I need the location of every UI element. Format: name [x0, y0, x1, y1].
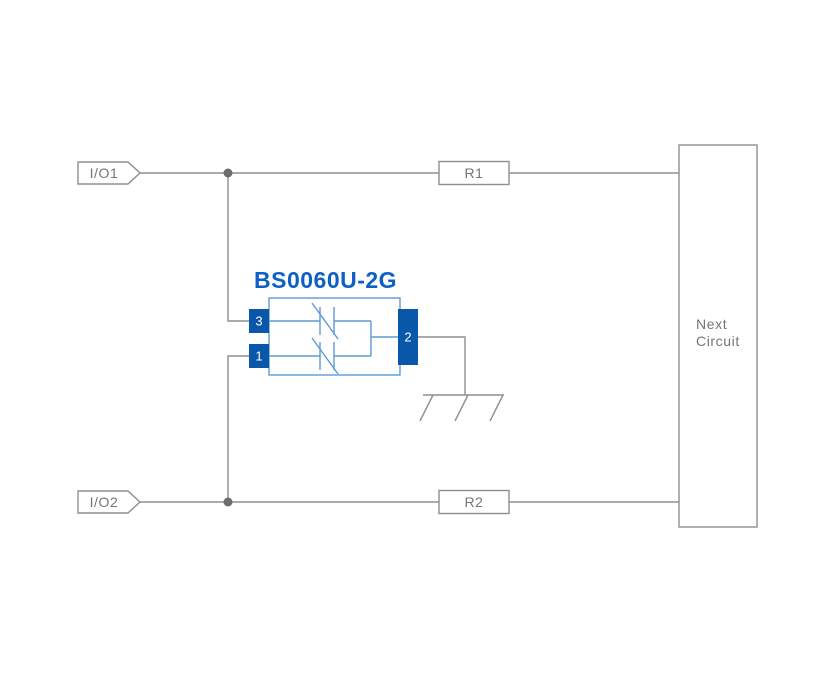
io1-tag: I/O1	[78, 162, 140, 184]
next-circuit-block: Next Circuit	[679, 145, 757, 527]
ground-hatch	[455, 395, 468, 421]
resistor-r1: R1	[439, 162, 509, 185]
io1-label: I/O1	[90, 165, 119, 181]
next-circuit-label-line1: Next	[696, 316, 727, 332]
chassis-ground-icon	[420, 395, 504, 421]
wire-segment	[418, 337, 465, 395]
junction-dot	[224, 498, 233, 507]
wire-segment	[228, 356, 249, 502]
wire-segment	[228, 173, 249, 321]
schematic-page: I/O1 I/O2 R1 R2 Next Circuit BS0060U-2G	[0, 0, 832, 675]
r1-label: R1	[464, 165, 483, 181]
r2-label: R2	[464, 494, 483, 510]
pin-3-label: 3	[255, 314, 262, 329]
circuit-diagram: I/O1 I/O2 R1 R2 Next Circuit BS0060U-2G	[0, 0, 832, 675]
io2-label: I/O2	[90, 494, 119, 510]
io2-tag: I/O2	[78, 491, 140, 513]
pin-2-label: 2	[404, 330, 411, 345]
component-title: BS0060U-2G	[254, 267, 397, 293]
esd-component: BS0060U-2G	[249, 267, 418, 375]
junction-dot	[224, 169, 233, 178]
resistor-r2: R2	[439, 491, 509, 514]
ground-hatch	[490, 395, 503, 421]
next-circuit-label-line2: Circuit	[696, 333, 740, 349]
ground-hatch	[420, 395, 433, 421]
pin-1-label: 1	[255, 349, 262, 364]
